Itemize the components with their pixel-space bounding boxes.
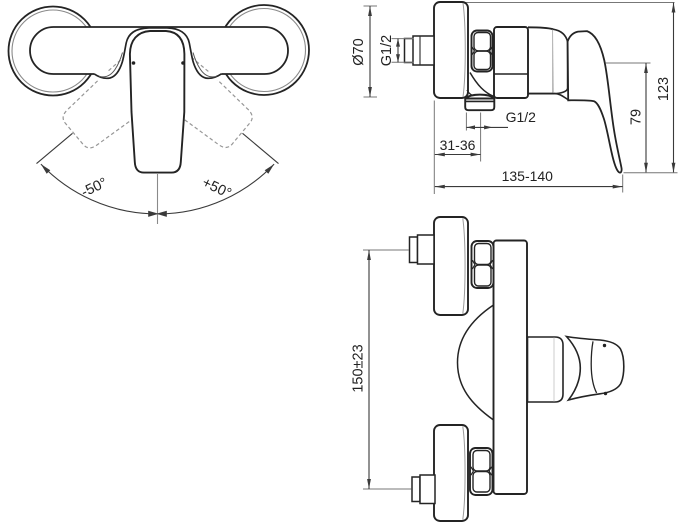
svg-text:79: 79	[629, 109, 645, 125]
svg-text:123: 123	[656, 77, 672, 101]
svg-text:Ø70: Ø70	[351, 38, 367, 65]
svg-text:135-140: 135-140	[502, 168, 554, 184]
svg-text:150±23: 150±23	[351, 344, 367, 392]
svg-text:31-36: 31-36	[440, 137, 476, 153]
svg-text:G1/2: G1/2	[506, 109, 537, 125]
svg-text:G1/2: G1/2	[379, 35, 395, 66]
